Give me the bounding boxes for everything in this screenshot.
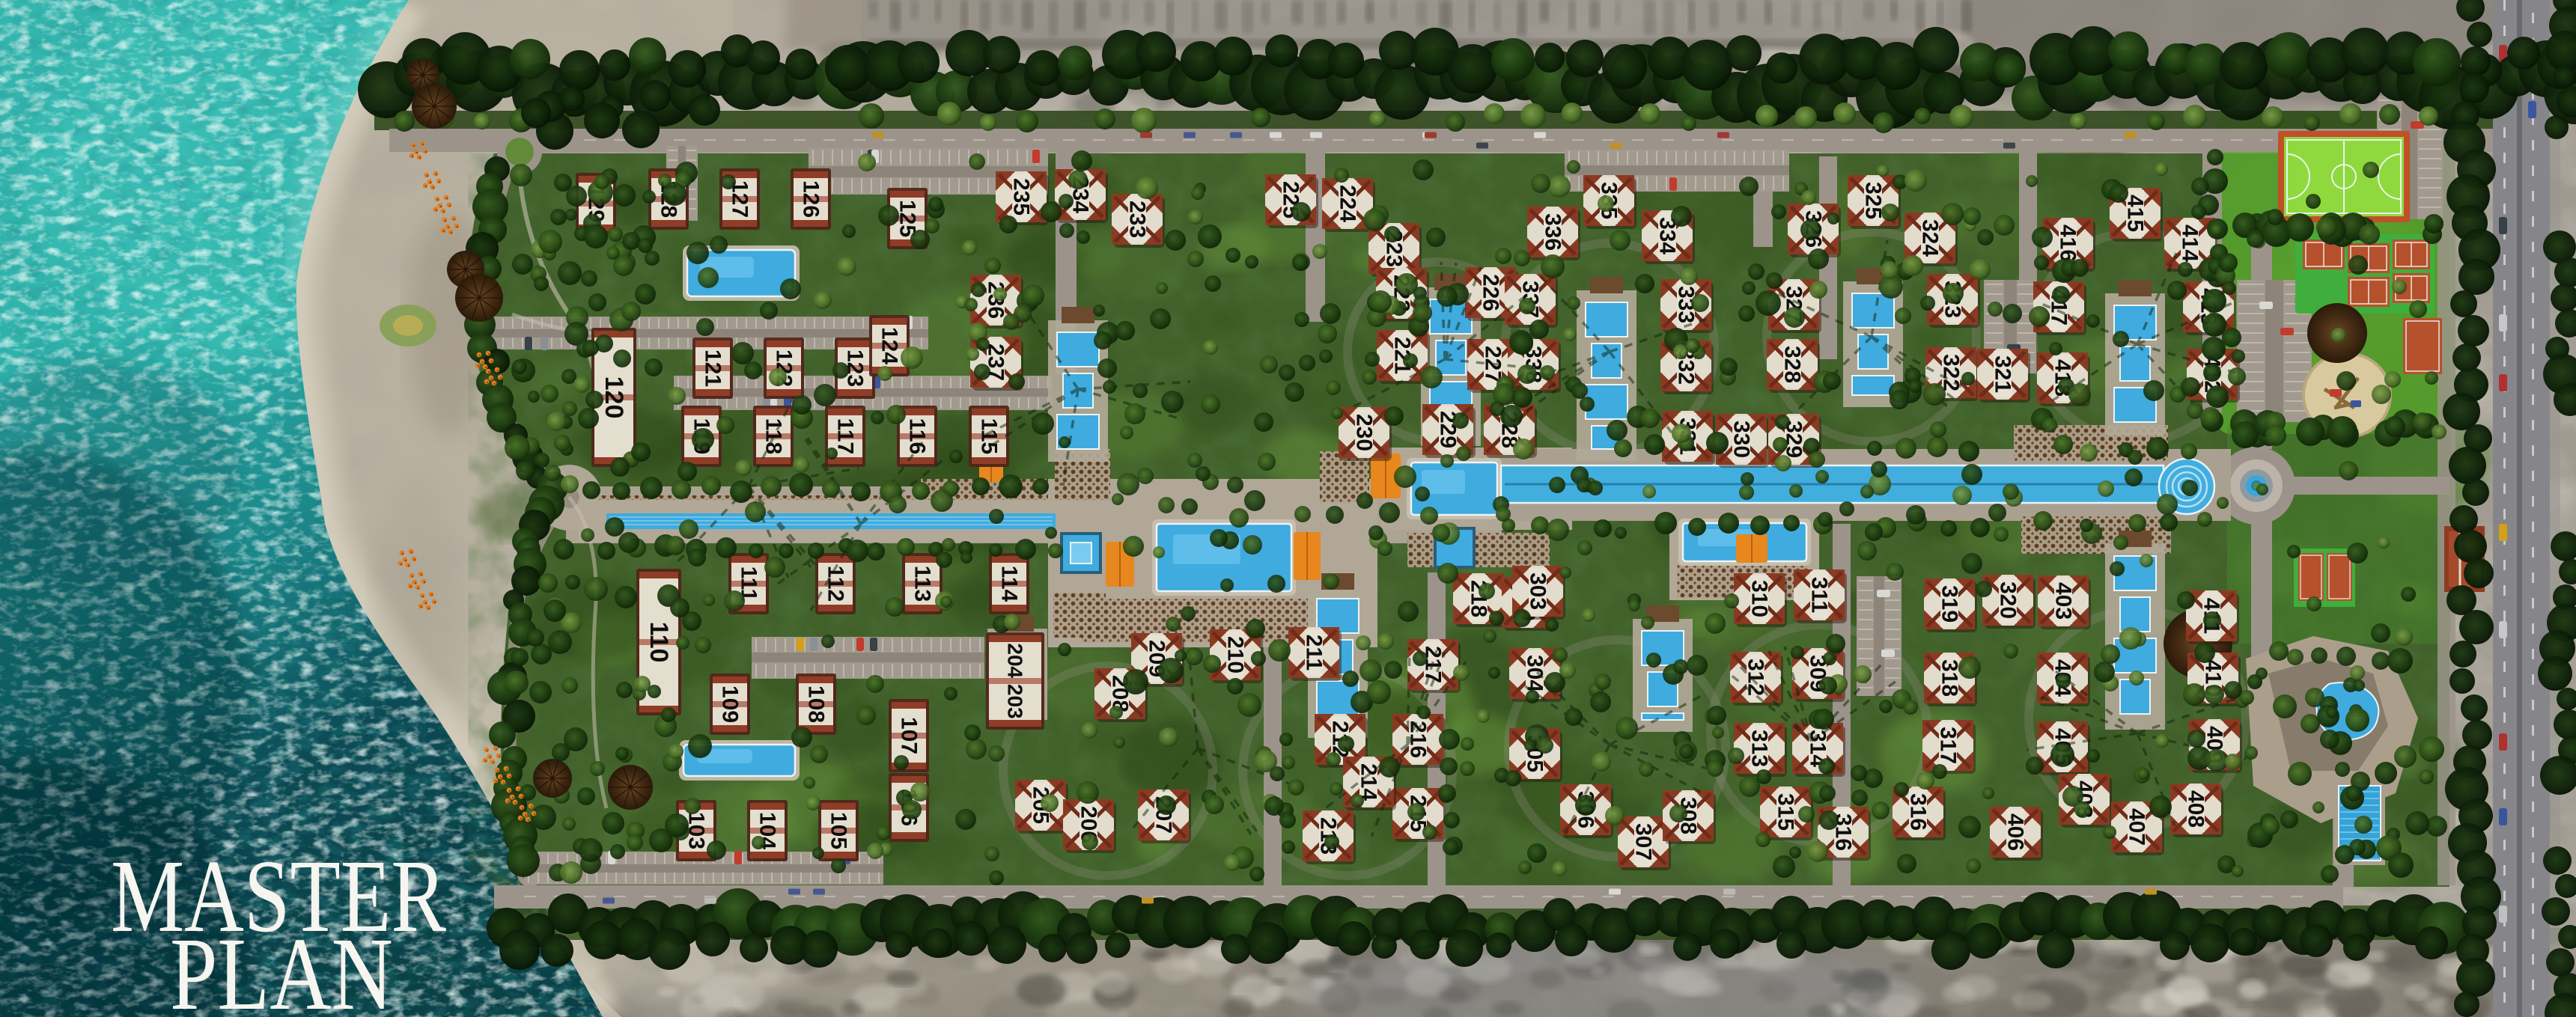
svg-text:224: 224 [1336,185,1360,222]
svg-text:336: 336 [1541,213,1565,251]
svg-text:PLAN: PLAN [170,917,393,1017]
svg-text:318: 318 [1937,659,1962,697]
svg-text:320: 320 [1996,581,2021,619]
svg-text:317: 317 [1936,727,1961,764]
svg-text:114: 114 [997,566,1022,602]
svg-text:321: 321 [1991,355,2015,393]
svg-text:403: 403 [2051,582,2076,620]
svg-text:110: 110 [645,622,673,663]
svg-text:120: 120 [600,376,628,419]
svg-text:315: 315 [1773,793,1798,831]
svg-text:116: 116 [905,418,930,454]
svg-text:109: 109 [718,685,743,723]
svg-text:105: 105 [826,812,851,849]
svg-text:113: 113 [910,566,935,602]
svg-text:319: 319 [1937,585,1962,623]
svg-text:126: 126 [799,180,823,218]
svg-text:303: 303 [1526,572,1550,610]
svg-text:236: 236 [984,281,1008,319]
svg-text:124: 124 [877,327,902,364]
svg-text:414: 414 [2178,225,2202,262]
svg-text:121: 121 [701,349,725,387]
svg-text:407: 407 [2125,808,2149,846]
svg-text:310: 310 [1747,580,1772,617]
svg-text:226: 226 [1479,274,1503,311]
svg-text:235: 235 [1009,178,1034,216]
svg-text:108: 108 [804,685,829,723]
svg-text:107: 107 [897,717,922,754]
svg-text:210: 210 [1223,636,1248,674]
svg-text:408: 408 [2184,790,2208,828]
svg-text:117: 117 [833,418,858,454]
svg-text:328: 328 [1780,346,1805,383]
svg-text:115: 115 [977,418,1002,454]
svg-text:233: 233 [1125,201,1150,238]
svg-text:311: 311 [1807,577,1832,613]
svg-text:406: 406 [2003,813,2028,851]
svg-text:313: 313 [1747,730,1772,767]
svg-text:316: 316 [1906,793,1931,831]
svg-text:307: 307 [1631,823,1656,861]
svg-text:324: 324 [1918,219,1943,257]
svg-text:415: 415 [2123,195,2148,232]
svg-text:416: 416 [2056,225,2080,262]
svg-text:230: 230 [1352,414,1377,451]
svg-text:204 203: 204 203 [1004,643,1027,718]
svg-text:118: 118 [761,418,786,454]
svg-text:330: 330 [1729,421,1754,458]
svg-text:211: 211 [1302,635,1327,671]
